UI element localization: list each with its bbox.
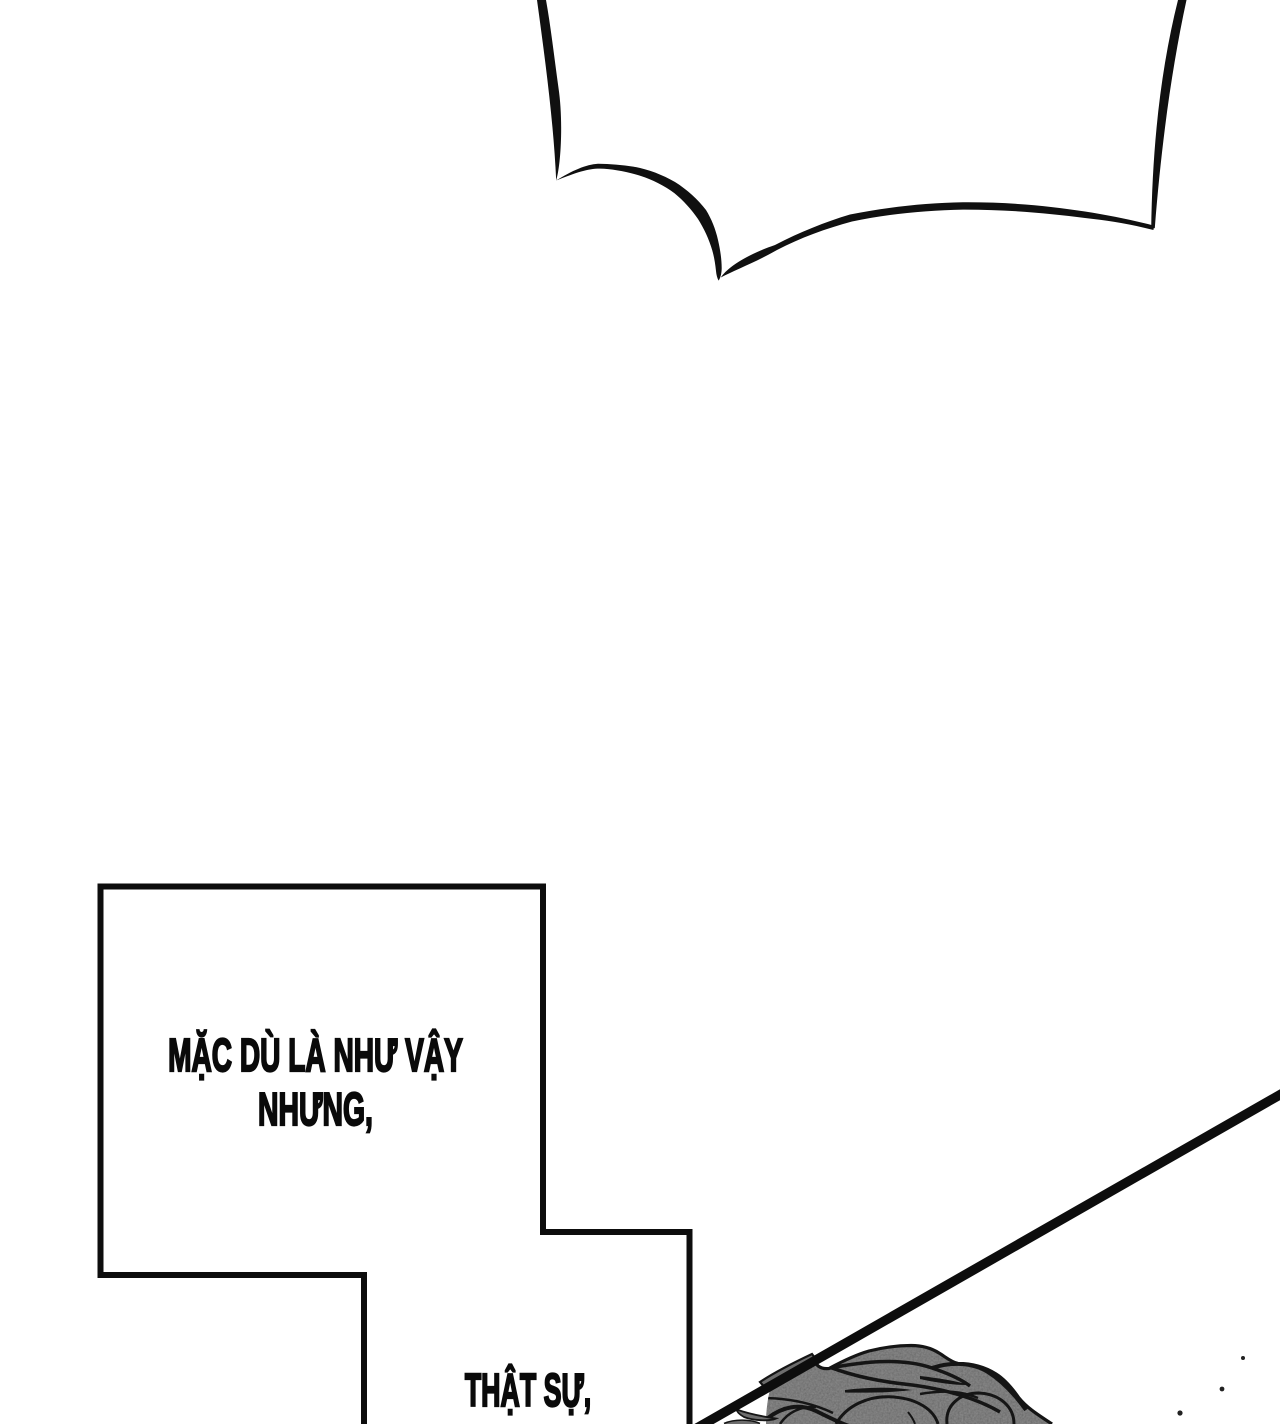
svg-text:THẬT SỰ,: THẬT SỰ, bbox=[465, 1363, 591, 1417]
svg-text:MẶC DÙ LÀ NHƯ VẬY: MẶC DÙ LÀ NHƯ VẬY bbox=[168, 1029, 463, 1082]
svg-text:NHƯNG,: NHƯNG, bbox=[258, 1084, 373, 1136]
